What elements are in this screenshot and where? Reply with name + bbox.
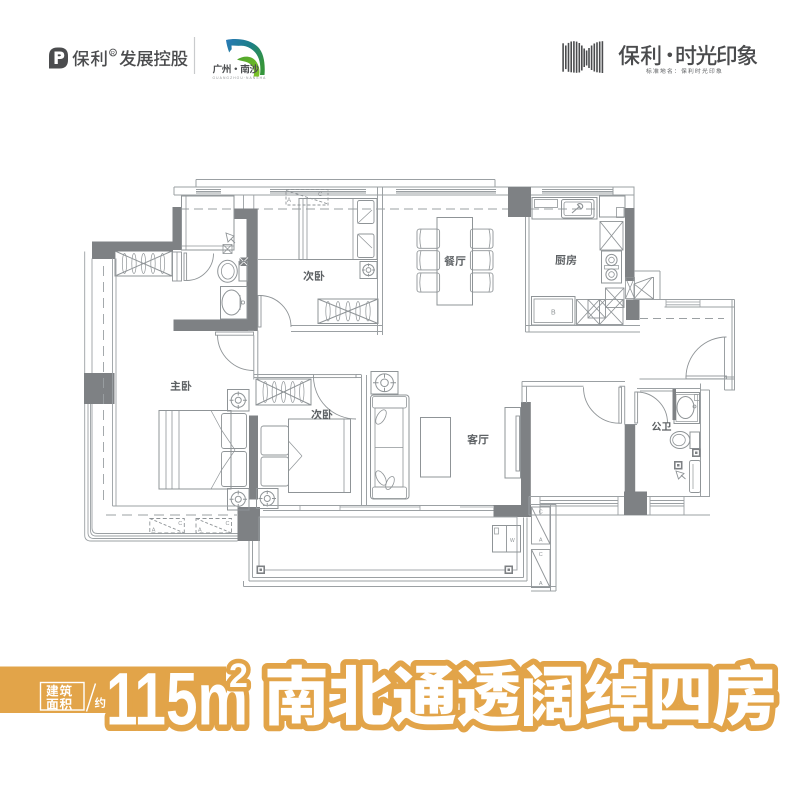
svg-text:B: B: [551, 310, 556, 317]
svg-text:C: C: [539, 552, 543, 558]
svg-text:A: A: [287, 198, 291, 204]
svg-text:W: W: [510, 538, 515, 544]
svg-text:GUANGZHOU·NANSHA: GUANGZHOU·NANSHA: [213, 76, 267, 80]
svg-text:2: 2: [229, 657, 248, 695]
svg-text:A: A: [152, 528, 156, 534]
svg-text:C: C: [178, 521, 182, 527]
svg-text:A: A: [539, 538, 543, 544]
svg-text:115m: 115m: [106, 658, 248, 741]
svg-text:C: C: [226, 521, 230, 527]
svg-text:C: C: [318, 192, 323, 198]
svg-text:R: R: [111, 51, 115, 57]
svg-text:C: C: [539, 510, 543, 516]
svg-text:A: A: [539, 581, 543, 587]
svg-text:A: A: [198, 528, 202, 534]
